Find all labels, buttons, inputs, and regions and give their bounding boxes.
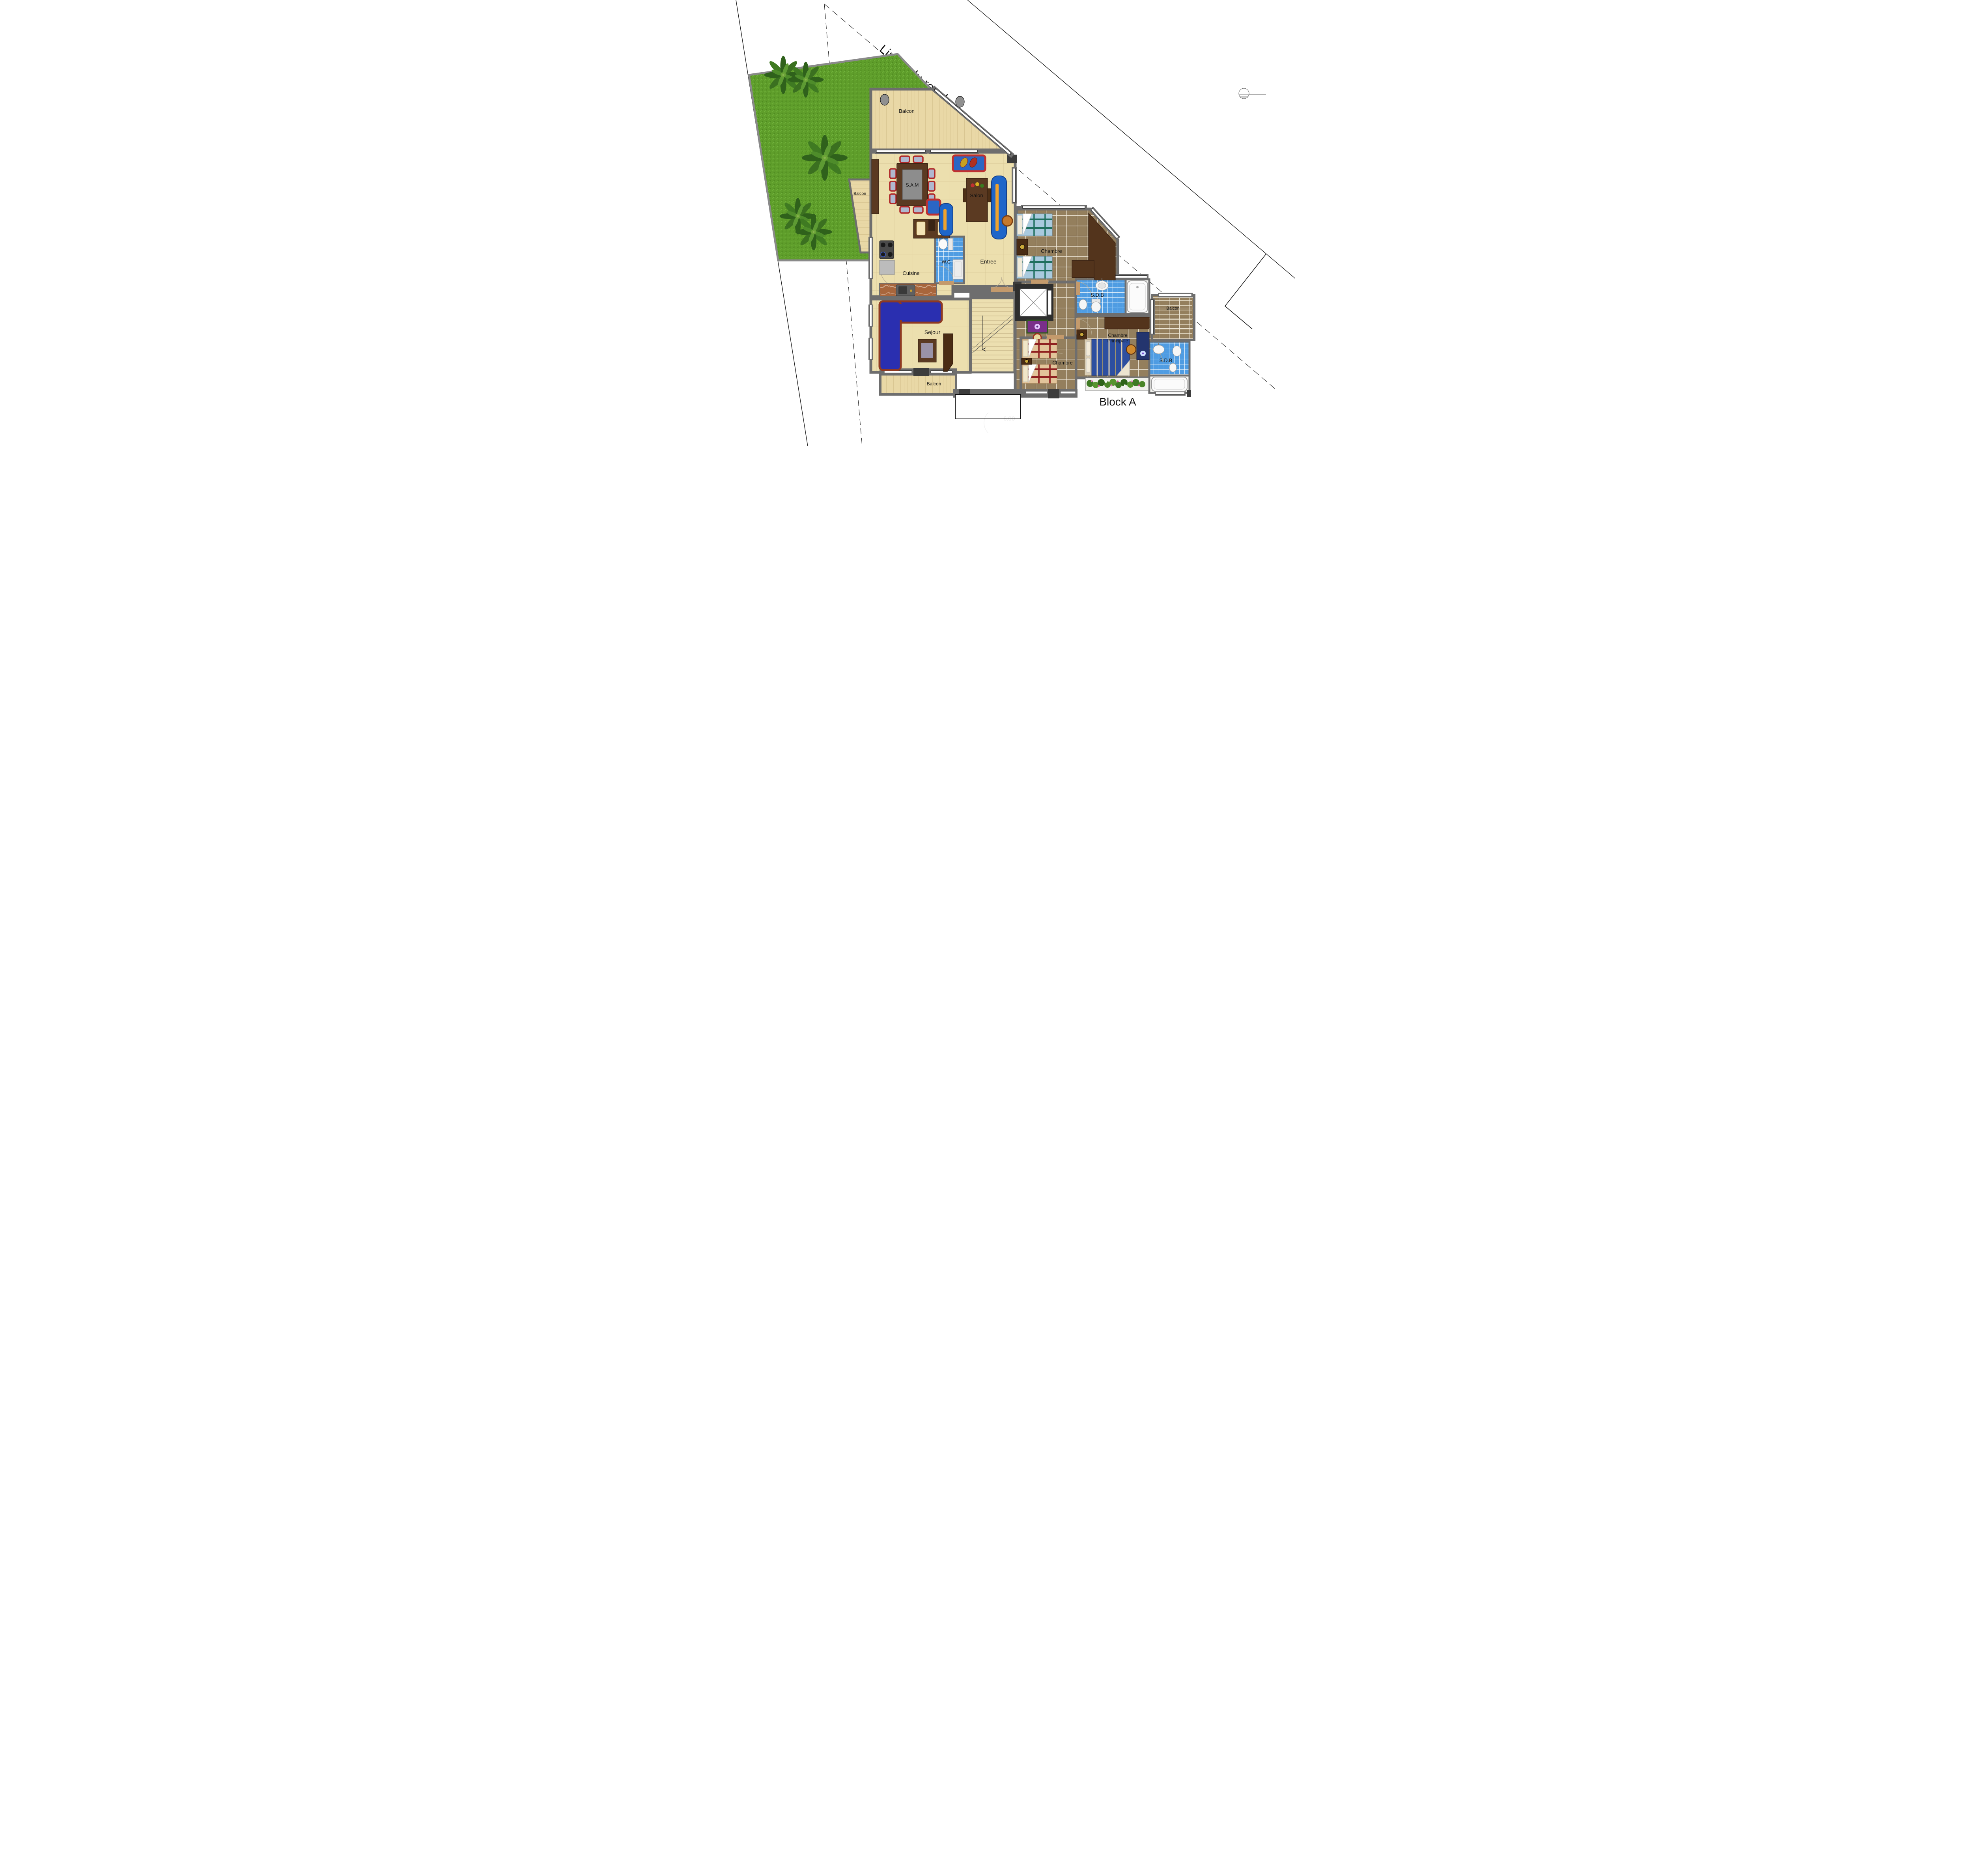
balcon-right-label: Balcon <box>1166 306 1180 311</box>
pier-south-2 <box>1048 389 1059 398</box>
staircase-area <box>971 298 1014 372</box>
salon-label: Salon <box>970 192 983 198</box>
room-balcon-right <box>1152 295 1194 340</box>
bathtub <box>1127 281 1148 312</box>
door-sill-wc <box>939 281 954 285</box>
palm-tree-icon <box>788 62 824 98</box>
window <box>929 149 979 154</box>
double-bed <box>1085 339 1130 376</box>
table-lamp <box>917 222 925 235</box>
tv-cabinet <box>943 334 953 372</box>
nightstand-lamp <box>1025 360 1029 363</box>
window <box>1150 299 1155 335</box>
twin-bed <box>1022 364 1057 383</box>
toilet <box>939 239 947 249</box>
pillow <box>1086 342 1090 356</box>
window <box>868 305 873 327</box>
shower-tray <box>953 260 963 279</box>
bidet <box>1169 363 1176 372</box>
dresser <box>1072 260 1094 278</box>
curved-sofa <box>992 176 1007 239</box>
pier-balcon-bottom <box>913 368 929 376</box>
chambre-top-label: Chambre <box>1041 248 1062 254</box>
pillow <box>1023 366 1028 382</box>
sdb-top-label: S.D.B <box>1091 292 1104 298</box>
sink-basin <box>898 286 907 294</box>
principale-label-1: Chambre <box>1108 333 1128 338</box>
pillow <box>1086 358 1090 372</box>
door-sill-chambre-top <box>1031 280 1048 284</box>
twin-bed <box>1017 256 1052 278</box>
principale-label-2: Principale <box>1107 338 1128 344</box>
window <box>868 237 873 279</box>
window <box>930 369 953 374</box>
window <box>1021 205 1087 210</box>
balcon-top-label: Balcon <box>899 108 915 114</box>
console-vase <box>928 220 935 231</box>
sam-label: S.A.M <box>906 182 919 188</box>
door-sill-entree <box>991 287 1013 292</box>
sdb-bottom-label: S.D.B <box>1160 358 1173 363</box>
sejour-coffee-table-top <box>921 343 933 358</box>
door-sill-chambre-bottom <box>1047 335 1064 339</box>
balcon-bottom-label: Balcon <box>927 381 941 387</box>
twin-bed <box>1022 339 1057 358</box>
stool <box>1126 345 1136 354</box>
loveseat <box>953 155 985 171</box>
palm-tree-icon <box>796 214 832 250</box>
pier-southeast <box>1187 390 1191 397</box>
window <box>1012 167 1017 204</box>
faint-dimension: 6.00 <box>1003 415 1015 422</box>
nightstand-lamp <box>1080 333 1084 336</box>
block-title: Block A <box>1099 396 1136 408</box>
balcony-column <box>956 96 964 107</box>
window <box>1158 293 1193 297</box>
desk-lamp <box>1036 326 1038 328</box>
pillow <box>1023 341 1028 357</box>
toilet <box>1173 346 1181 356</box>
window <box>1060 390 1076 395</box>
flower-bowl <box>975 182 979 186</box>
armchair <box>927 200 940 215</box>
window <box>875 149 927 154</box>
faucet <box>910 290 912 292</box>
sofa-cushion-strip <box>995 184 999 231</box>
pillow <box>1018 258 1022 277</box>
sejour-label: Sejour <box>924 329 941 335</box>
stairs-north-wall <box>969 293 1016 298</box>
balcony-column <box>880 94 889 105</box>
lamp <box>1142 353 1144 355</box>
pillow <box>1018 215 1022 234</box>
flower-bowl <box>971 183 975 187</box>
dresser <box>1105 317 1149 329</box>
nightstand-lamp <box>1020 245 1025 249</box>
door-sill-sdb-top <box>1076 282 1080 295</box>
elevator-door <box>1048 290 1051 315</box>
floor-plan-canvas: Limite du recul <box>677 0 1295 446</box>
round-side-table <box>1002 216 1012 226</box>
elevator <box>1015 284 1053 321</box>
flower-bowl <box>980 184 984 188</box>
bidet <box>1079 299 1087 310</box>
sofa-cushion-strip <box>943 209 947 230</box>
sink <box>1153 345 1164 354</box>
wc-label: W.C <box>942 259 951 265</box>
toilet <box>1091 302 1101 312</box>
floor-plan-page: Limite du recul <box>677 0 1295 446</box>
balcon-left-label: Balcon <box>853 191 866 196</box>
flower-planter <box>1085 378 1148 391</box>
chambre-bottom-label: Chambre <box>1052 360 1072 366</box>
sink-basin <box>1098 283 1106 288</box>
refrigerator <box>880 260 894 275</box>
twin-bed <box>1017 214 1052 236</box>
toilet-tank <box>948 238 953 250</box>
cuisine-label: Cuisine <box>902 270 919 276</box>
window <box>868 338 873 360</box>
palm-tree-icon <box>802 135 848 181</box>
entree-label: Entree <box>980 258 996 265</box>
sideboard <box>872 159 879 214</box>
window <box>1025 390 1048 395</box>
l-sofa-seat <box>882 304 939 320</box>
drain <box>1136 286 1139 288</box>
